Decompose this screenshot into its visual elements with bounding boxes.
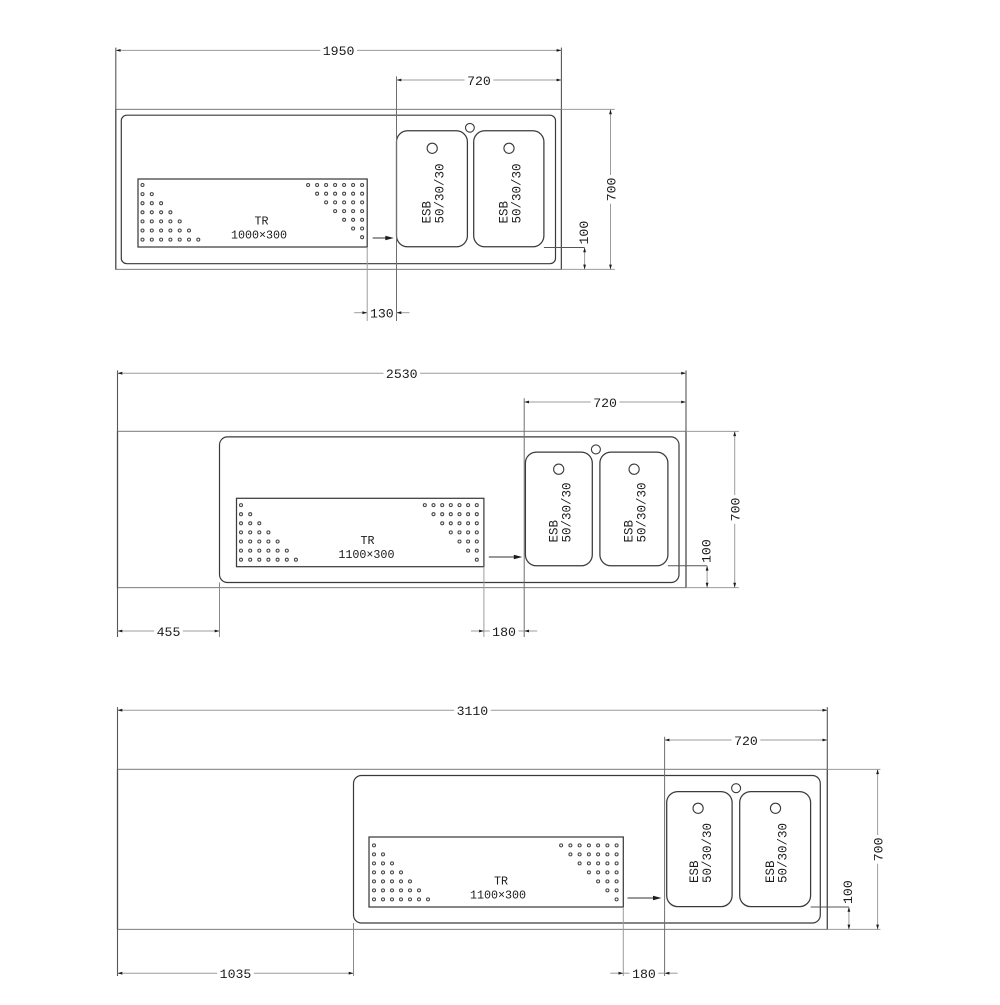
svg-text:180: 180 (632, 967, 656, 982)
svg-text:100: 100 (699, 539, 714, 563)
svg-text:TR: TR (360, 534, 374, 548)
svg-text:50/30/30: 50/30/30 (635, 482, 649, 542)
svg-text:3110: 3110 (457, 704, 489, 719)
svg-text:1035: 1035 (220, 967, 252, 982)
svg-text:130: 130 (370, 306, 394, 321)
svg-text:1100×300: 1100×300 (470, 889, 526, 903)
svg-text:180: 180 (492, 625, 516, 640)
svg-text:1000×300: 1000×300 (231, 229, 287, 243)
svg-text:50/30/30: 50/30/30 (510, 163, 524, 223)
svg-text:TR: TR (494, 875, 508, 889)
svg-text:50/30/30: 50/30/30 (560, 482, 574, 542)
svg-text:720: 720 (467, 74, 491, 89)
svg-text:50/30/30: 50/30/30 (777, 823, 791, 883)
svg-text:100: 100 (577, 221, 592, 245)
svg-text:TR: TR (254, 215, 268, 229)
svg-text:700: 700 (604, 177, 619, 201)
svg-text:1100×300: 1100×300 (338, 548, 394, 562)
svg-text:1950: 1950 (323, 44, 355, 59)
svg-text:700: 700 (871, 837, 886, 861)
svg-text:700: 700 (728, 498, 743, 522)
svg-text:100: 100 (841, 880, 856, 904)
svg-text:720: 720 (734, 734, 758, 749)
svg-text:720: 720 (593, 396, 617, 411)
svg-text:50/30/30: 50/30/30 (701, 823, 715, 883)
svg-text:455: 455 (157, 625, 181, 640)
svg-text:2530: 2530 (386, 367, 418, 382)
svg-text:50/30/30: 50/30/30 (433, 163, 447, 223)
